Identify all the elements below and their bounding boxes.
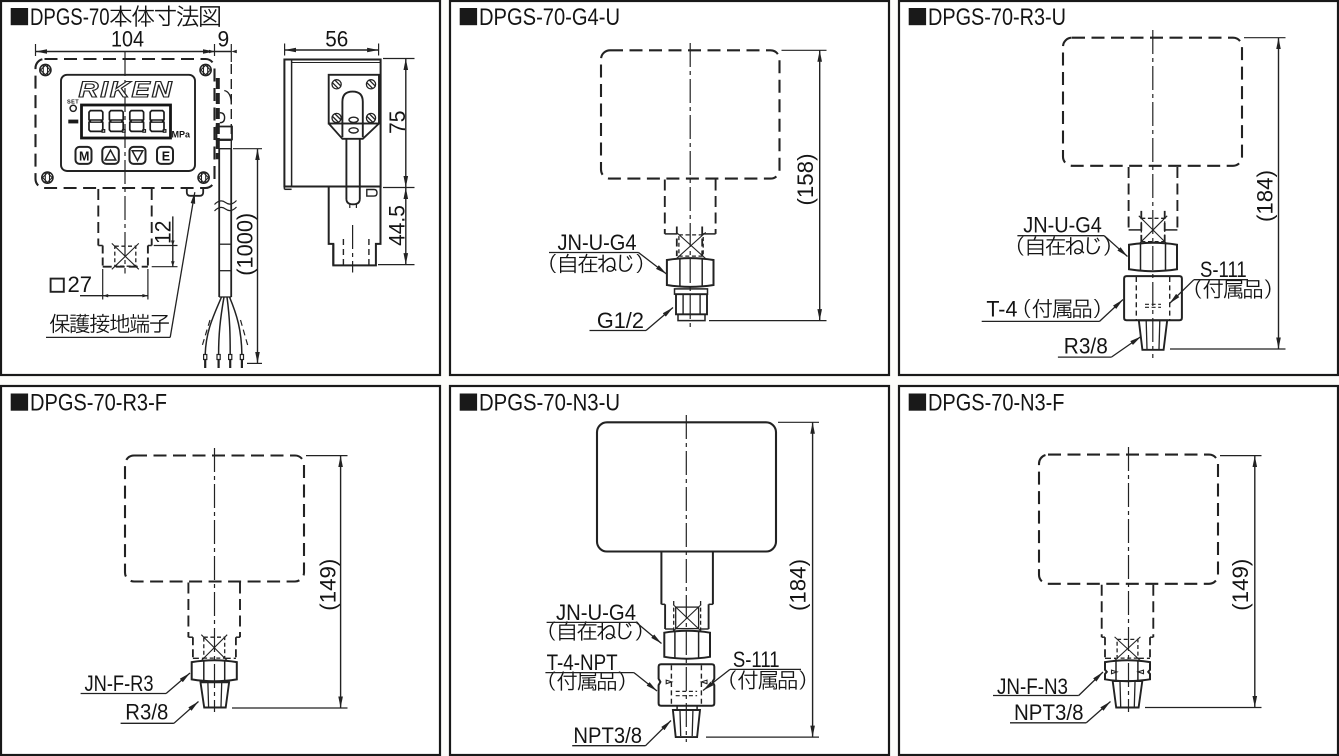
svg-text:(149): (149): [1228, 559, 1253, 611]
svg-text:E: E: [162, 150, 170, 164]
svg-text:R3/8: R3/8: [125, 700, 168, 725]
svg-text:M: M: [79, 150, 89, 164]
svg-text:DPGS-70-N3-U: DPGS-70-N3-U: [479, 390, 620, 417]
svg-text:MPa: MPa: [172, 130, 191, 140]
svg-text:(184): (184): [1253, 170, 1278, 222]
svg-text:S-111: S-111: [733, 647, 780, 672]
svg-text:DPGS-70-N3-F: DPGS-70-N3-F: [928, 390, 1065, 417]
svg-text:(1000): (1000): [232, 213, 257, 276]
svg-text:T-4: T-4: [986, 297, 1017, 322]
svg-text:(184): (184): [786, 559, 811, 611]
svg-text:27: 27: [68, 272, 93, 297]
svg-text:JN-U-G4: JN-U-G4: [558, 230, 637, 255]
svg-text:NPT3/8: NPT3/8: [1014, 700, 1084, 725]
svg-text:56: 56: [325, 27, 348, 52]
svg-text:G1/2: G1/2: [597, 308, 644, 333]
svg-text:104: 104: [111, 27, 144, 52]
svg-text:R3/8: R3/8: [1064, 334, 1108, 359]
svg-text:(158): (158): [793, 154, 818, 206]
svg-text:JN-F-R3: JN-F-R3: [85, 671, 154, 696]
svg-text:JN-U-G4: JN-U-G4: [1023, 213, 1102, 238]
svg-text:T-4-NPT: T-4-NPT: [547, 650, 618, 675]
svg-text:DPGS-70-G4-U: DPGS-70-G4-U: [479, 4, 620, 31]
svg-text:DPGS-70-R3-U: DPGS-70-R3-U: [928, 4, 1066, 31]
svg-text:S-111: S-111: [1200, 257, 1247, 282]
svg-text:JN-U-G4: JN-U-G4: [556, 600, 636, 625]
svg-text:12: 12: [150, 221, 175, 244]
svg-text:DPGS-70-R3-F: DPGS-70-R3-F: [30, 390, 167, 417]
svg-text:NPT3/8: NPT3/8: [573, 723, 642, 748]
svg-text:DPGS-70: DPGS-70: [30, 4, 110, 31]
svg-text:RIKEN: RIKEN: [79, 77, 174, 102]
svg-text:(149): (149): [316, 559, 341, 611]
svg-text:9: 9: [218, 27, 230, 52]
